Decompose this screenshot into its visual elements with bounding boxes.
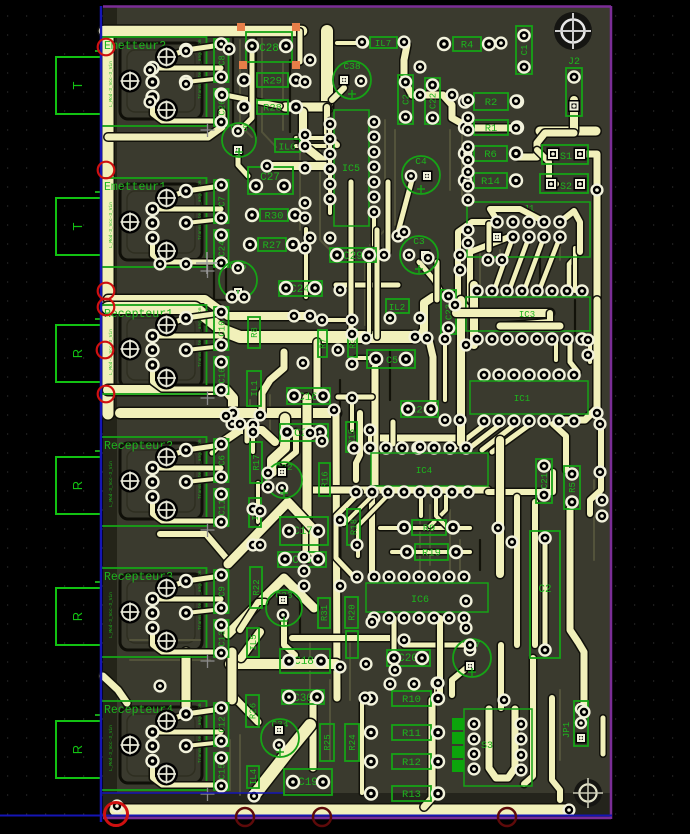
svg-text:R19: R19 bbox=[422, 548, 441, 560]
svg-text:S3: S3 bbox=[481, 741, 493, 752]
svg-text:C2: C2 bbox=[538, 584, 551, 596]
svg-text:T: T bbox=[70, 81, 85, 89]
svg-text:C22: C22 bbox=[429, 93, 439, 109]
svg-text:R6: R6 bbox=[484, 149, 497, 161]
svg-text:R8: R8 bbox=[250, 327, 260, 338]
svg-text:R29: R29 bbox=[263, 76, 282, 88]
svg-text:IC6: IC6 bbox=[411, 595, 429, 606]
svg-text:IC4: IC4 bbox=[416, 466, 432, 476]
svg-text:R: R bbox=[70, 612, 85, 621]
svg-text:C16: C16 bbox=[298, 392, 318, 404]
svg-text:L_Mod-3_Vcc-3_Vin: L_Mod-3_Vcc-3_Vin bbox=[108, 725, 114, 771]
svg-text:C29: C29 bbox=[343, 251, 363, 263]
svg-text:R18: R18 bbox=[350, 519, 360, 535]
svg-text:R: R bbox=[70, 745, 85, 754]
svg-text:R1: R1 bbox=[485, 123, 498, 135]
svg-text:C4: C4 bbox=[415, 156, 427, 167]
svg-text:R14: R14 bbox=[481, 176, 500, 188]
svg-text:C12: C12 bbox=[217, 716, 227, 732]
svg-text:C27: C27 bbox=[260, 172, 280, 184]
svg-text:R30: R30 bbox=[265, 211, 284, 223]
svg-text:C24: C24 bbox=[217, 240, 227, 256]
svg-text:T: T bbox=[70, 222, 85, 230]
svg-text:R27: R27 bbox=[263, 240, 282, 252]
svg-text:R5: R5 bbox=[568, 482, 578, 493]
svg-text:C20: C20 bbox=[217, 99, 227, 115]
svg-text:C21: C21 bbox=[540, 473, 550, 489]
svg-text:R31: R31 bbox=[320, 605, 330, 621]
svg-text:R2: R2 bbox=[485, 97, 498, 109]
svg-text:C30: C30 bbox=[293, 693, 313, 705]
svg-text:R16: R16 bbox=[321, 471, 331, 487]
svg-text:C38: C38 bbox=[343, 61, 360, 72]
svg-text:C8: C8 bbox=[217, 55, 227, 66]
svg-text:R17: R17 bbox=[252, 454, 262, 470]
svg-text:R4: R4 bbox=[461, 40, 474, 52]
svg-text:IL5: IL5 bbox=[249, 634, 259, 650]
svg-text:C9: C9 bbox=[217, 586, 227, 597]
svg-text:R9: R9 bbox=[423, 523, 436, 535]
svg-text:C3: C3 bbox=[413, 236, 425, 247]
svg-text:JP1: JP1 bbox=[562, 722, 572, 738]
svg-text:C19: C19 bbox=[298, 777, 318, 789]
svg-text:C6: C6 bbox=[217, 455, 227, 466]
svg-text:C28: C28 bbox=[259, 43, 279, 55]
svg-text:L_Mod-3_Vcc-3_Vin: L_Mod-3_Vcc-3_Vin bbox=[108, 202, 114, 248]
svg-text:C10: C10 bbox=[217, 320, 227, 336]
svg-text:S1: S1 bbox=[560, 152, 572, 163]
svg-text:C10: C10 bbox=[217, 367, 227, 383]
svg-text:IL7: IL7 bbox=[375, 39, 391, 49]
svg-text:R11: R11 bbox=[402, 728, 421, 740]
svg-text:C15: C15 bbox=[217, 763, 227, 779]
svg-text:R28: R28 bbox=[263, 103, 282, 115]
svg-text:IL2: IL2 bbox=[389, 303, 405, 313]
svg-text:C7: C7 bbox=[217, 196, 227, 207]
svg-text:C24: C24 bbox=[290, 284, 310, 296]
svg-text:C18: C18 bbox=[294, 656, 314, 668]
svg-text:R: R bbox=[70, 349, 85, 358]
svg-text:IL6: IL6 bbox=[278, 142, 295, 153]
svg-text:R22: R22 bbox=[252, 579, 262, 595]
svg-text:L_Mod-3_Vcc-3_Vin: L_Mod-3_Vcc-3_Vin bbox=[108, 592, 114, 638]
svg-text:R26: R26 bbox=[249, 703, 259, 719]
svg-text:R25: R25 bbox=[323, 734, 333, 750]
svg-text:R24: R24 bbox=[348, 734, 358, 750]
svg-text:S2: S2 bbox=[560, 182, 572, 193]
svg-text:R12: R12 bbox=[402, 757, 421, 769]
svg-text:IC1: IC1 bbox=[514, 394, 530, 404]
svg-text:L_Mod-3_Vcc-3_Vin: L_Mod-3_Vcc-3_Vin bbox=[108, 461, 114, 507]
svg-text:IC5: IC5 bbox=[342, 164, 360, 175]
svg-text:C13: C13 bbox=[217, 630, 227, 646]
svg-text:R: R bbox=[70, 481, 85, 490]
svg-text:R20: R20 bbox=[348, 604, 358, 620]
svg-text:IL1: IL1 bbox=[250, 380, 260, 396]
svg-text:R13: R13 bbox=[402, 789, 421, 801]
svg-text:IL4: IL4 bbox=[249, 769, 259, 785]
svg-text:J2: J2 bbox=[568, 57, 580, 68]
svg-text:C2: C2 bbox=[402, 94, 412, 105]
svg-text:R7: R7 bbox=[319, 338, 329, 349]
svg-text:L_Mod-3_Vcc-3_Vin: L_Mod-3_Vcc-3_Vin bbox=[108, 61, 114, 107]
svg-text:R10: R10 bbox=[402, 694, 421, 706]
svg-text:C1: C1 bbox=[520, 45, 530, 56]
svg-text:C5: C5 bbox=[386, 356, 398, 367]
svg-text:C11: C11 bbox=[217, 499, 227, 515]
svg-text:IC3: IC3 bbox=[519, 310, 535, 320]
